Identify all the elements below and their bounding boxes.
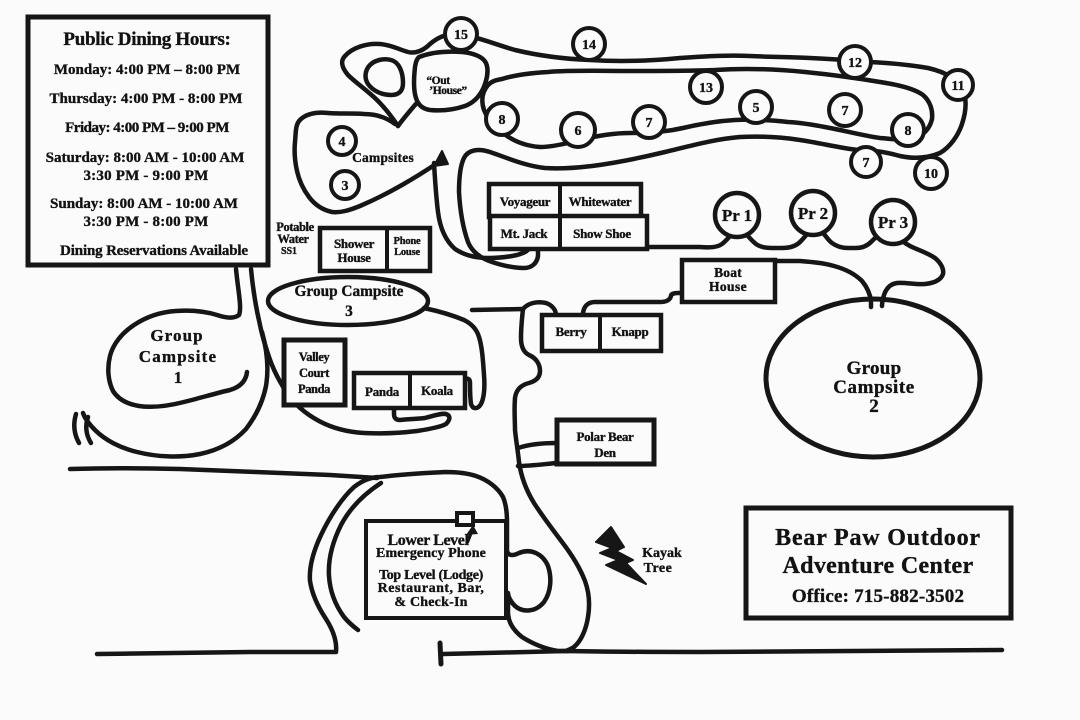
svg-text:Saturday: 8:00 AM - 10:00 AM: Saturday: 8:00 AM - 10:00 AM (46, 150, 245, 166)
svg-text:11: 11 (951, 79, 964, 94)
svg-text:Campsite: Campsite (139, 347, 218, 366)
svg-text:Phone: Phone (393, 236, 421, 247)
svg-text:8: 8 (905, 124, 912, 139)
svg-text:7: 7 (842, 104, 849, 119)
svg-text:Knapp: Knapp (612, 324, 649, 339)
svg-text:Adventure Center: Adventure Center (782, 553, 973, 579)
svg-text:Pr 3: Pr 3 (878, 213, 908, 232)
svg-text:7: 7 (863, 156, 870, 171)
svg-text:Emergency Phone: Emergency Phone (376, 546, 486, 561)
svg-text:2: 2 (869, 396, 879, 417)
svg-text:14: 14 (582, 38, 596, 53)
svg-text:Court: Court (299, 366, 330, 380)
svg-text:Tree: Tree (644, 561, 673, 576)
svg-text:Pr 2: Pr 2 (798, 204, 828, 223)
svg-text:13: 13 (699, 81, 713, 96)
svg-text:12: 12 (848, 56, 862, 71)
svg-text:Sunday: 8:00 AM - 10:00 AM: Sunday: 8:00 AM - 10:00 AM (50, 196, 238, 212)
svg-text:1: 1 (174, 368, 183, 387)
svg-text:Group: Group (150, 326, 203, 345)
svg-text:3: 3 (345, 303, 353, 320)
svg-text:Pr 1: Pr 1 (722, 206, 752, 225)
svg-text:& Check-In: & Check-In (394, 595, 467, 610)
svg-text:10: 10 (924, 167, 938, 182)
svg-text:Dining Reservations Available: Dining Reservations Available (60, 243, 248, 259)
svg-text:15: 15 (454, 28, 468, 43)
svg-text:5: 5 (753, 101, 760, 116)
svg-text:Panda: Panda (365, 384, 400, 399)
svg-text:Valley: Valley (299, 350, 331, 364)
svg-text:3: 3 (342, 179, 349, 194)
svg-text:Kayak: Kayak (642, 546, 682, 561)
svg-text:3:30 PM - 8:00 PM: 3:30 PM - 8:00 PM (83, 214, 208, 230)
svg-text:7: 7 (646, 116, 653, 131)
svg-text:3:30 PM - 9:00 PM: 3:30 PM - 9:00 PM (83, 168, 208, 184)
svg-text:Den: Den (594, 445, 617, 460)
svg-text:Berry: Berry (556, 324, 588, 339)
svg-text:Monday: 4:00 PM – 8:00 PM: Monday: 4:00 PM – 8:00 PM (54, 62, 240, 78)
svg-text:Thursday: 4:00 PM - 8:00 PM: Thursday: 4:00 PM - 8:00 PM (50, 91, 243, 107)
svg-text:SS1: SS1 (281, 246, 297, 257)
svg-text:Polar Bear: Polar Bear (576, 429, 634, 444)
svg-text:Louse: Louse (394, 247, 420, 258)
svg-text:Panda: Panda (298, 382, 331, 396)
svg-text:House: House (709, 279, 747, 294)
svg-text:Office: 715-882-3502: Office: 715-882-3502 (792, 586, 964, 607)
svg-text:Mt. Jack: Mt. Jack (501, 226, 549, 241)
svg-text:4: 4 (339, 135, 346, 150)
svg-text:Whitewater: Whitewater (569, 194, 632, 209)
svg-text:Group Campsite: Group Campsite (295, 283, 404, 300)
svg-text:’House”: ’House” (429, 85, 467, 97)
svg-text:Boat: Boat (714, 265, 742, 280)
svg-text:House: House (337, 250, 371, 265)
svg-text:8: 8 (499, 113, 506, 128)
svg-text:Group: Group (846, 358, 901, 379)
svg-text:Voyageur: Voyageur (500, 194, 551, 209)
svg-text:6: 6 (575, 124, 582, 139)
svg-text:Restaurant, Bar,: Restaurant, Bar, (378, 581, 485, 596)
svg-text:Show Shoe: Show Shoe (573, 226, 631, 241)
svg-text:Shower: Shower (334, 236, 375, 251)
svg-text:Campsites: Campsites (352, 150, 414, 165)
svg-text:Koala: Koala (421, 383, 454, 398)
svg-text:Water: Water (277, 232, 309, 246)
svg-text:Public Dining Hours:: Public Dining Hours: (63, 29, 230, 50)
svg-text:Bear Paw Outdoor: Bear Paw Outdoor (775, 525, 981, 551)
svg-text:Friday: 4:00 PM – 9:00 PM: Friday: 4:00 PM – 9:00 PM (65, 120, 229, 136)
svg-text:Campsite: Campsite (833, 377, 914, 398)
